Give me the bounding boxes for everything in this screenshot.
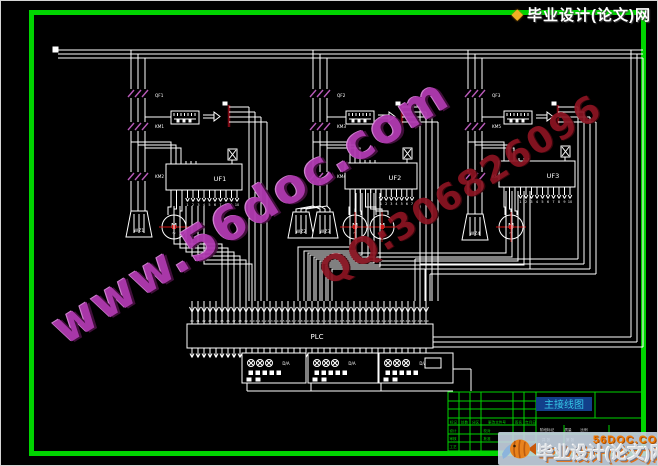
svg-text:KM2: KM2	[155, 174, 164, 179]
svg-text:1: 1	[519, 200, 521, 204]
svg-text:X13: X13	[267, 319, 272, 323]
svg-text:处数: 处数	[461, 420, 469, 425]
inverter-label: UF2	[389, 174, 402, 182]
svg-text:X12: X12	[261, 319, 266, 323]
svg-text:X8: X8	[238, 319, 242, 323]
svg-text:X18: X18	[297, 319, 302, 323]
svg-text:分区: 分区	[472, 420, 480, 425]
svg-text:QF1: QF1	[155, 93, 164, 98]
svg-text:X38: X38	[417, 319, 422, 323]
svg-text:X14: X14	[273, 319, 278, 323]
svg-text:X10: X10	[249, 319, 254, 323]
svg-text:X4: X4	[214, 319, 218, 323]
svg-text:6: 6	[547, 200, 549, 204]
svg-text:X25: X25	[339, 319, 344, 323]
inverter-label: UF3	[547, 172, 560, 180]
svg-text:4: 4	[536, 200, 538, 204]
svg-text:工艺: 工艺	[449, 444, 457, 449]
diamond-icon: ◆	[511, 7, 523, 22]
svg-text:X6: X6	[226, 319, 230, 323]
svg-text:X5: X5	[220, 319, 224, 323]
svg-text:X36: X36	[405, 319, 410, 323]
svg-text:X20: X20	[309, 319, 314, 323]
fish-icon	[501, 434, 537, 464]
resistor-label: WZ3	[320, 229, 331, 235]
title-block-title: 主接线图	[544, 398, 584, 411]
svg-text:3: 3	[530, 200, 532, 204]
resistor-label: WZ4	[470, 231, 481, 237]
svg-text:X7: X7	[232, 319, 236, 323]
svg-text:X21: X21	[315, 319, 320, 323]
cad-canvas: QF1KM1KM2WZ1UF112345678910M~QF2KM3KM4WZ2…	[0, 0, 658, 466]
svg-text:X17: X17	[291, 319, 296, 323]
da-module-box	[242, 353, 306, 383]
svg-text:X2: X2	[202, 319, 206, 323]
svg-text:X37: X37	[411, 319, 416, 323]
site-logo-top-text: 毕业设计(论文)网	[527, 4, 651, 25]
resistor-label: WZ1	[134, 228, 145, 234]
svg-text:X9: X9	[244, 319, 248, 323]
svg-text:标记: 标记	[450, 420, 458, 425]
site-name-text: 毕业设计(论文)网	[537, 445, 658, 462]
svg-text:X0: X0	[190, 319, 194, 323]
svg-text:QF3: QF3	[492, 93, 501, 98]
svg-text:X15: X15	[279, 319, 284, 323]
svg-text:X27: X27	[351, 319, 356, 323]
svg-text:校对: 校对	[483, 428, 491, 433]
svg-text:X33: X33	[387, 319, 392, 323]
svg-text:X11: X11	[255, 319, 260, 323]
inverter-box	[166, 164, 242, 190]
svg-text:8: 8	[558, 200, 560, 204]
svg-text:批准: 批准	[483, 436, 491, 441]
svg-text:2: 2	[385, 202, 387, 206]
svg-text:2: 2	[525, 200, 527, 204]
svg-text:X19: X19	[303, 319, 308, 323]
da-module-box	[308, 353, 378, 383]
site-logo-bottom: 56DOC.COM 毕业设计(论文)网	[498, 432, 658, 465]
da-module-box	[379, 353, 453, 383]
svg-text:X39: X39	[423, 319, 428, 323]
svg-text:X35: X35	[399, 319, 404, 323]
svg-text:X34: X34	[393, 319, 398, 323]
svg-text:KM5: KM5	[492, 124, 501, 129]
site-logo-top: ◆ 毕业设计(论文)网	[511, 4, 651, 25]
svg-text:X31: X31	[375, 319, 380, 323]
svg-text:X30: X30	[369, 319, 374, 323]
svg-text:X24: X24	[333, 319, 338, 323]
svg-text:审核: 审核	[449, 436, 457, 441]
svg-text:X23: X23	[327, 319, 332, 323]
svg-text:X16: X16	[285, 319, 290, 323]
svg-text:X26: X26	[345, 319, 350, 323]
svg-text:3: 3	[390, 202, 392, 206]
svg-text:X3: X3	[208, 319, 212, 323]
svg-text:1: 1	[186, 203, 188, 207]
svg-text:签名: 签名	[515, 420, 523, 425]
svg-text:年月日: 年月日	[525, 420, 536, 425]
resistor-label: WZ2	[296, 229, 307, 235]
da-module-label: D/A	[282, 361, 289, 366]
inverter-label: UF1	[214, 175, 227, 183]
svg-text:更改文件号: 更改文件号	[488, 420, 506, 425]
schematic: QF1KM1KM2WZ1UF112345678910M~QF2KM3KM4WZ2…	[1, 1, 658, 466]
svg-text:设计: 设计	[449, 428, 457, 433]
plc-label: PLC	[310, 333, 323, 341]
svg-text:X22: X22	[321, 319, 326, 323]
svg-text:7: 7	[552, 200, 554, 204]
da-module-label: D/A	[348, 361, 355, 366]
svg-text:X1: X1	[196, 319, 200, 323]
svg-text:9: 9	[563, 200, 565, 204]
svg-text:10: 10	[568, 200, 572, 204]
svg-text:X28: X28	[357, 319, 362, 323]
svg-text:QF2: QF2	[337, 93, 346, 98]
svg-text:X29: X29	[363, 319, 368, 323]
svg-text:5: 5	[541, 200, 543, 204]
svg-text:X32: X32	[381, 319, 386, 323]
svg-text:KM1: KM1	[155, 124, 164, 129]
